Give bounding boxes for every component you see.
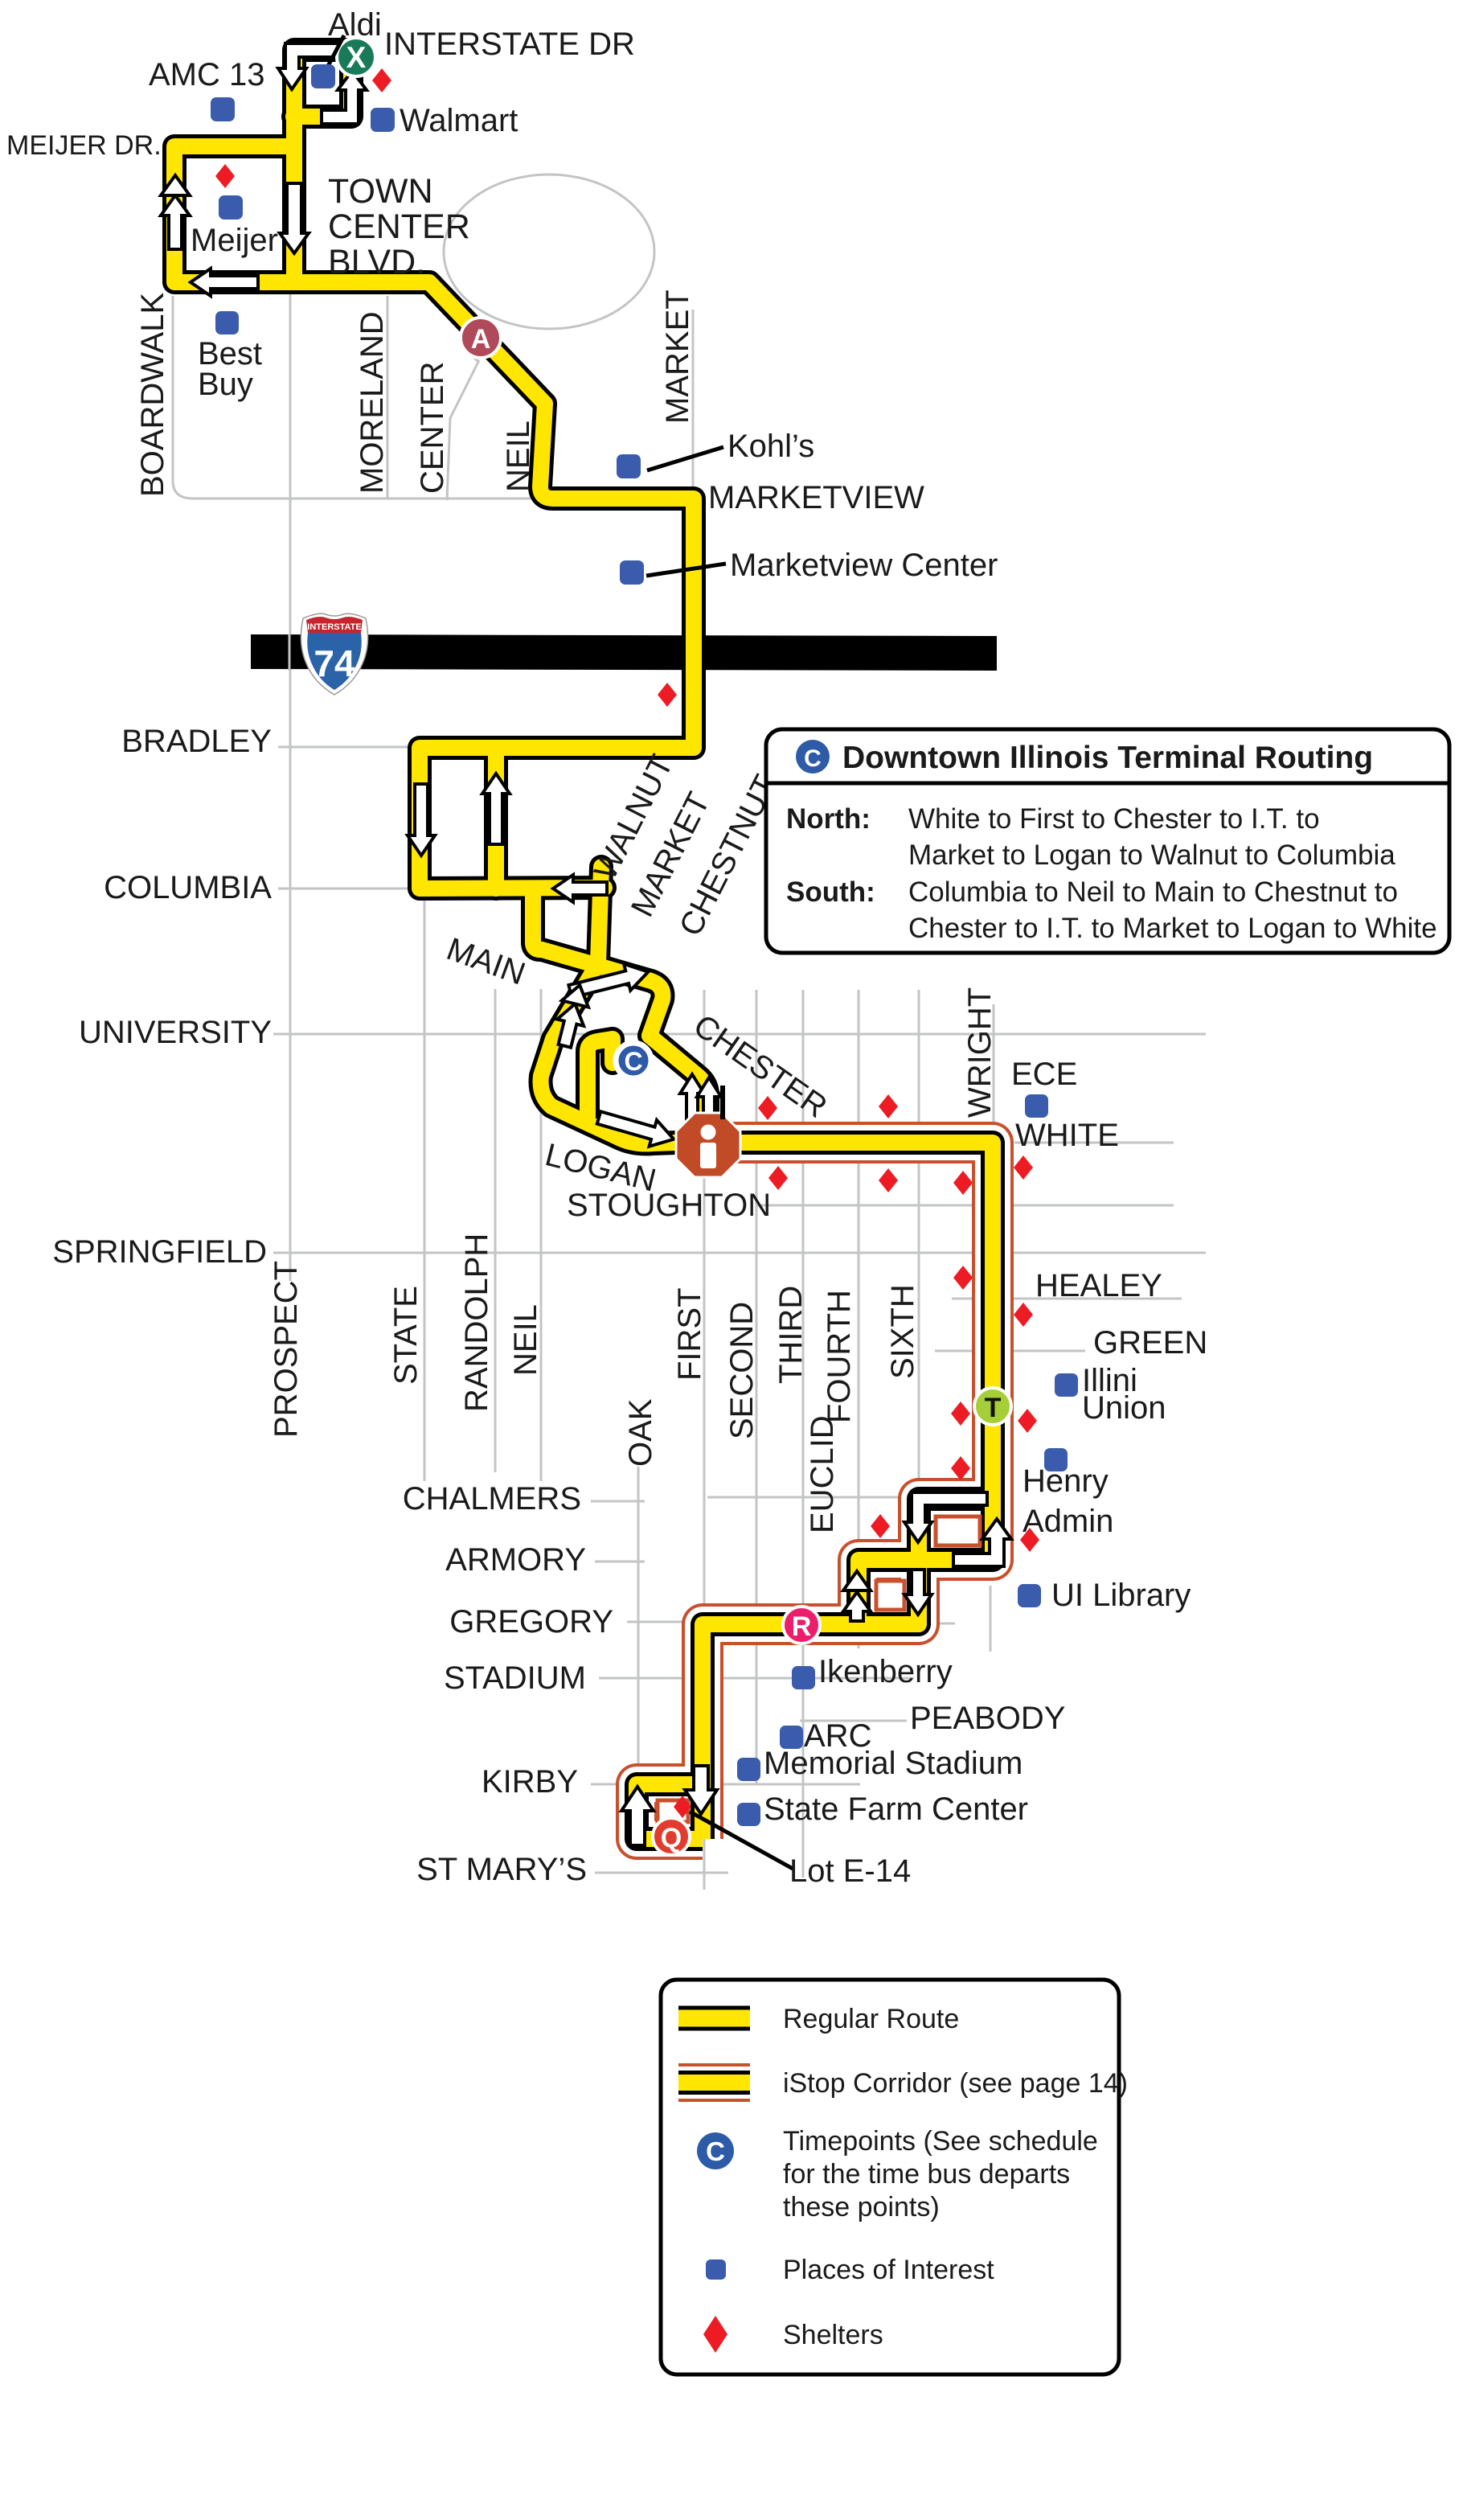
svg-text:for the time bus departs: for the time bus departs xyxy=(783,2159,1070,2190)
svg-text:HEALEY: HEALEY xyxy=(1035,1268,1162,1303)
svg-text:White to First to Chester to I: White to First to Chester to I.T. to xyxy=(908,803,1320,835)
svg-text:R: R xyxy=(792,1611,812,1642)
svg-text:STOUGHTON: STOUGHTON xyxy=(567,1188,771,1223)
svg-text:WRIGHT: WRIGHT xyxy=(962,987,998,1118)
svg-text:COLUMBIA: COLUMBIA xyxy=(104,870,272,905)
svg-text:ARMORY: ARMORY xyxy=(445,1542,586,1578)
svg-text:74: 74 xyxy=(314,642,355,684)
svg-text:MARKET: MARKET xyxy=(660,289,695,424)
svg-text:FOURTH: FOURTH xyxy=(822,1290,857,1423)
svg-text:CENTER: CENTER xyxy=(415,362,450,494)
svg-text:C: C xyxy=(706,2136,725,2166)
svg-text:SPRINGFIELD: SPRINGFIELD xyxy=(52,1234,267,1270)
svg-text:STATE: STATE xyxy=(388,1286,424,1385)
svg-text:SIXTH: SIXTH xyxy=(885,1284,920,1379)
svg-text:CHALMERS: CHALMERS xyxy=(403,1481,581,1517)
svg-text:OAK: OAK xyxy=(623,1398,658,1467)
svg-text:AMC 13: AMC 13 xyxy=(149,57,265,92)
svg-text:WHITE: WHITE xyxy=(1015,1118,1119,1153)
svg-text:Ikenberry: Ikenberry xyxy=(818,1654,953,1689)
svg-text:iStop Corridor (see page 14): iStop Corridor (see page 14) xyxy=(783,2068,1128,2099)
svg-text:INTERSTATE DR: INTERSTATE DR xyxy=(384,27,635,62)
svg-text:MARKETVIEW: MARKETVIEW xyxy=(708,480,924,515)
svg-text:Union: Union xyxy=(1082,1390,1166,1426)
svg-text:Kohl’s: Kohl’s xyxy=(727,429,814,464)
svg-text:ECE: ECE xyxy=(1011,1057,1077,1092)
svg-text:SECOND: SECOND xyxy=(724,1302,760,1439)
svg-text:TOWN: TOWN xyxy=(328,172,433,211)
svg-text:Regular Route: Regular Route xyxy=(783,2004,959,2034)
svg-text:Market to Logan to Walnut to C: Market to Logan to Walnut to Columbia xyxy=(908,839,1395,871)
svg-text:Q: Q xyxy=(661,1823,682,1853)
svg-text:UNIVERSITY: UNIVERSITY xyxy=(79,1015,272,1050)
svg-text:Admin: Admin xyxy=(1023,1504,1113,1539)
svg-text:Shelters: Shelters xyxy=(783,2320,883,2350)
svg-text:Memorial Stadium: Memorial Stadium xyxy=(764,1746,1023,1781)
svg-text:C: C xyxy=(624,1047,642,1076)
svg-text:A: A xyxy=(471,324,491,355)
svg-text:T: T xyxy=(985,1393,1002,1423)
svg-text:ST MARY’S: ST MARY’S xyxy=(416,1852,587,1887)
svg-text:INTERSTATE: INTERSTATE xyxy=(307,622,361,632)
svg-text:MORELAND: MORELAND xyxy=(355,311,390,494)
svg-text:GREEN: GREEN xyxy=(1093,1325,1207,1361)
svg-text:EUCLID: EUCLID xyxy=(805,1415,840,1533)
svg-text:Downtown Illinois Terminal Rou: Downtown Illinois Terminal Routing xyxy=(842,741,1373,775)
svg-text:NEIL: NEIL xyxy=(501,421,536,492)
svg-text:these points): these points) xyxy=(783,2192,940,2222)
svg-text:Aldi: Aldi xyxy=(328,7,382,43)
svg-text:KIRBY: KIRBY xyxy=(482,1764,578,1800)
svg-text:South:: South: xyxy=(786,876,875,908)
svg-text:Columbia to Neil to Main to Ch: Columbia to Neil to Main to Chestnut to xyxy=(908,876,1398,908)
svg-text:PROSPECT: PROSPECT xyxy=(268,1261,304,1438)
svg-text:BLVD.: BLVD. xyxy=(328,243,425,281)
svg-text:Buy: Buy xyxy=(198,367,253,402)
svg-text:C: C xyxy=(804,745,822,772)
svg-text:BOARDWALK: BOARDWALK xyxy=(135,293,170,497)
svg-text:Lot E-14: Lot E-14 xyxy=(789,1853,911,1889)
svg-text:Marketview Center: Marketview Center xyxy=(730,548,998,583)
svg-text:THIRD: THIRD xyxy=(773,1286,809,1384)
svg-text:FIRST: FIRST xyxy=(672,1287,707,1381)
svg-text:North:: North: xyxy=(786,803,871,835)
svg-text:Places of Interest: Places of Interest xyxy=(783,2255,994,2285)
svg-text:X: X xyxy=(346,41,367,74)
svg-text:Timepoints (See schedule: Timepoints (See schedule xyxy=(783,2126,1098,2157)
svg-text:GREGORY: GREGORY xyxy=(449,1604,613,1640)
svg-text:NEIL: NEIL xyxy=(508,1304,543,1376)
svg-text:Meijer: Meijer xyxy=(191,223,278,258)
svg-text:Henry: Henry xyxy=(1023,1463,1109,1499)
svg-text:BRADLEY: BRADLEY xyxy=(121,724,272,759)
svg-text:MEIJER DR.: MEIJER DR. xyxy=(6,130,162,161)
svg-text:Chester to I.T. to Market to L: Chester to I.T. to Market to Logan to Wh… xyxy=(908,913,1437,944)
svg-text:State Farm Center: State Farm Center xyxy=(764,1791,1028,1827)
svg-text:PEABODY: PEABODY xyxy=(910,1701,1065,1736)
svg-text:CENTER: CENTER xyxy=(328,207,470,246)
svg-text:RANDOLPH: RANDOLPH xyxy=(459,1233,494,1412)
svg-text:Walmart: Walmart xyxy=(400,103,518,138)
svg-text:STADIUM: STADIUM xyxy=(444,1660,586,1696)
svg-text:UI Library: UI Library xyxy=(1051,1578,1191,1613)
